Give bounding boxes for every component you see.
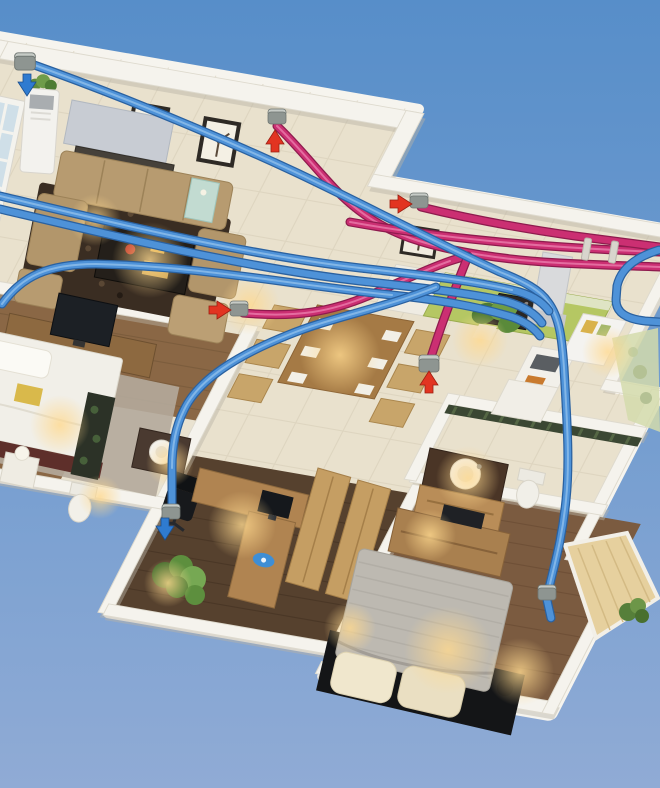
- vent-hallway-exhaust: [230, 301, 248, 316]
- vent-kitchen-floor-exhaust: [419, 355, 439, 372]
- floorplan-illustration: 3D cutaway floor plan of an apartment wi…: [0, 0, 660, 788]
- vent-dining-wall-exhaust: [410, 193, 428, 208]
- supply-duct-master-stub: [547, 600, 551, 618]
- vent-master-supply: [538, 585, 556, 600]
- scene-canvas: [0, 0, 660, 788]
- vent-outdoor-intake: [15, 53, 36, 70]
- vent-study-supply: [162, 504, 180, 519]
- vent-living-exhaust: [268, 109, 286, 124]
- ac-grille: [29, 94, 54, 110]
